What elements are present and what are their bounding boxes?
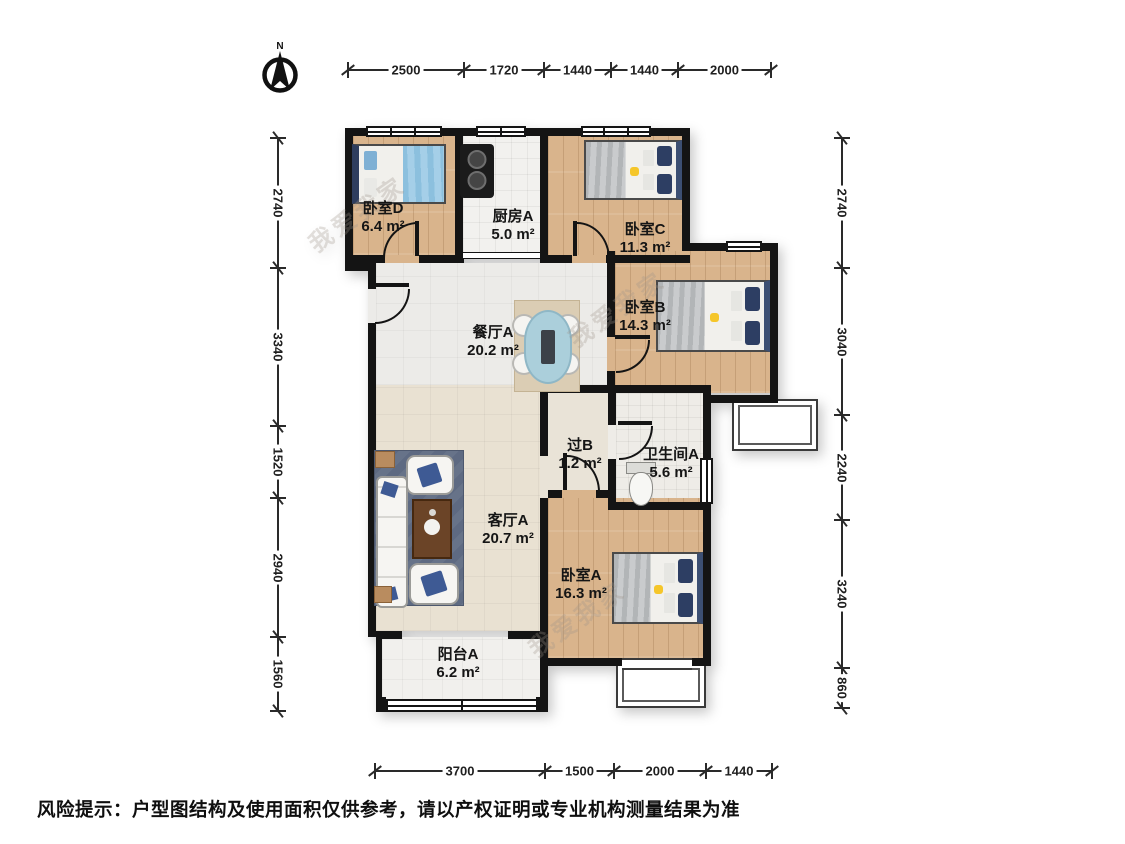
dimension-label: 2240 bbox=[835, 450, 850, 485]
room-label-bedroom-a: 卧室A 16.3 m² bbox=[555, 567, 607, 603]
room-label-bedroom-d: 卧室D 6.4 m² bbox=[361, 200, 404, 236]
dimension-label: 3240 bbox=[835, 577, 850, 612]
room-area: 16.3 m² bbox=[555, 585, 607, 603]
dimension-segment: 3340 bbox=[277, 268, 279, 426]
dimension-segment: 3700 bbox=[375, 770, 545, 772]
dimension-label: 2940 bbox=[271, 550, 286, 585]
dimension-label: 3340 bbox=[271, 330, 286, 365]
room-area: 5.0 m² bbox=[491, 226, 534, 244]
dimension-label: 1440 bbox=[722, 764, 757, 779]
dimension-label: 1500 bbox=[562, 764, 597, 779]
dimension-segment: 2000 bbox=[614, 770, 706, 772]
entrance-door-leaf bbox=[373, 283, 409, 287]
compass-north-icon: N bbox=[254, 38, 306, 98]
room-label-dining-a: 餐厅A 20.2 m² bbox=[467, 324, 519, 360]
equipment-platform bbox=[732, 399, 818, 451]
dimension-segment: 3240 bbox=[841, 520, 843, 668]
dimension-rail-bottom: 3700 1500 2000 1440 bbox=[375, 770, 772, 772]
window-balcony bbox=[386, 699, 538, 712]
window-bedroom-d bbox=[366, 126, 442, 137]
dimension-segment: 1500 bbox=[545, 770, 614, 772]
kitchen-threshold bbox=[463, 252, 540, 259]
armchair bbox=[406, 455, 454, 495]
bed-bedroom-a bbox=[612, 552, 703, 624]
dimension-segment: 2500 bbox=[348, 69, 464, 71]
armchair bbox=[409, 563, 459, 605]
dimension-label: 3040 bbox=[835, 324, 850, 359]
room-label-balcony-a: 阳台A 6.2 m² bbox=[436, 646, 479, 682]
coffee-table bbox=[412, 499, 452, 559]
door-gap-bedroom-b bbox=[607, 337, 615, 371]
wall-segment bbox=[703, 502, 711, 666]
wall-segment bbox=[682, 136, 690, 251]
bay-opening-bedroom-a bbox=[622, 658, 692, 670]
dimension-segment: 2940 bbox=[277, 498, 279, 637]
duck-toy bbox=[710, 313, 719, 322]
window-kitchen bbox=[476, 126, 526, 137]
window-bedroom-b bbox=[726, 241, 762, 252]
room-name: 卧室D bbox=[361, 200, 404, 218]
room-name: 客厅A bbox=[482, 512, 534, 530]
dimension-segment: 1720 bbox=[464, 69, 544, 71]
bed-bedroom-b bbox=[656, 280, 770, 352]
dimension-segment: 3040 bbox=[841, 268, 843, 415]
dimension-segment: 860 bbox=[841, 668, 843, 708]
room-area: 20.2 m² bbox=[467, 342, 519, 360]
room-area: 11.3 m² bbox=[620, 239, 671, 257]
room-name: 卫生间A bbox=[643, 446, 699, 464]
dimension-label: 1440 bbox=[560, 63, 595, 78]
dimension-segment: 1520 bbox=[277, 426, 279, 498]
dimension-segment: 1440 bbox=[706, 770, 772, 772]
dimension-segment: 2000 bbox=[678, 69, 771, 71]
side-table bbox=[375, 451, 395, 468]
wall-segment bbox=[703, 395, 778, 403]
bathroom-door-leaf bbox=[618, 421, 652, 425]
bedroom-b-door-leaf bbox=[615, 335, 650, 339]
room-area: 6.2 m² bbox=[436, 664, 479, 682]
floor-plan: 卧室D 6.4 m² 厨房A 5.0 m² 卧室C 11.3 m² 卧室B 14… bbox=[0, 0, 1125, 844]
room-area: 14.3 m² bbox=[619, 317, 671, 335]
dimension-label: 2740 bbox=[835, 186, 850, 221]
room-label-kitchen-a: 厨房A 5.0 m² bbox=[491, 208, 534, 244]
dimension-label: 2000 bbox=[707, 63, 742, 78]
passage-gap-hall bbox=[540, 456, 548, 498]
compass-north-label: N bbox=[276, 41, 283, 52]
duck-toy bbox=[654, 585, 663, 594]
room-label-bedroom-c: 卧室C 11.3 m² bbox=[620, 221, 671, 257]
wall-segment bbox=[540, 136, 548, 263]
wall-segment bbox=[608, 502, 711, 510]
room-area: 20.7 m² bbox=[482, 530, 534, 548]
wall-segment bbox=[376, 697, 386, 712]
wall-segment bbox=[770, 243, 778, 403]
dimension-rail-left: 2740 3340 1520 2940 1560 bbox=[277, 138, 279, 711]
bed-bedroom-c bbox=[584, 140, 682, 200]
room-area: 5.6 m² bbox=[643, 464, 699, 482]
dimension-segment: 2740 bbox=[277, 138, 279, 268]
dimension-label: 2000 bbox=[643, 764, 678, 779]
room-name: 过B bbox=[558, 437, 601, 455]
stove-icon bbox=[460, 144, 494, 198]
window-bathroom bbox=[700, 458, 713, 504]
dimension-segment: 2740 bbox=[841, 138, 843, 268]
wall-segment bbox=[376, 637, 382, 699]
room-name: 卧室A bbox=[555, 567, 607, 585]
room-name: 阳台A bbox=[436, 646, 479, 664]
dimension-label: 2500 bbox=[389, 63, 424, 78]
dimension-segment: 1560 bbox=[277, 637, 279, 711]
dimension-label: 1440 bbox=[627, 63, 662, 78]
floor-plan-canvas: N 2500 1720 1440 1440 2000 2740 3340 152… bbox=[0, 0, 1125, 844]
dimension-label: 3700 bbox=[443, 764, 478, 779]
room-label-bathroom-a: 卫生间A 5.6 m² bbox=[643, 446, 699, 482]
room-name: 卧室C bbox=[620, 221, 671, 239]
dimension-rail-top: 2500 1720 1440 1440 2000 bbox=[348, 69, 771, 71]
duck-toy bbox=[630, 167, 639, 176]
dimension-label: 2740 bbox=[271, 186, 286, 221]
room-area: 6.4 m² bbox=[361, 218, 404, 236]
room-name: 厨房A bbox=[491, 208, 534, 226]
room-label-living-a: 客厅A 20.7 m² bbox=[482, 512, 534, 548]
dimension-rail-right: 2740 3040 2240 3240 860 bbox=[841, 138, 843, 708]
risk-disclaimer-text: 风险提示：户型图结构及使用面积仅供参考，请以产权证明或专业机构测量结果为准 bbox=[37, 796, 740, 822]
dimension-label: 1520 bbox=[271, 445, 286, 480]
room-area: 1.2 m² bbox=[558, 455, 601, 473]
window-bedroom-c bbox=[581, 126, 651, 137]
room-label-bedroom-b: 卧室B 14.3 m² bbox=[619, 299, 671, 335]
room-label-hall-b: 过B 1.2 m² bbox=[558, 437, 601, 473]
door-gap-bathroom bbox=[608, 425, 616, 459]
room-name: 餐厅A bbox=[467, 324, 519, 342]
dimension-segment: 2240 bbox=[841, 415, 843, 520]
dimension-label: 1720 bbox=[487, 63, 522, 78]
side-table bbox=[374, 586, 392, 603]
dimension-segment: 1440 bbox=[544, 69, 611, 71]
dimension-segment: 1440 bbox=[611, 69, 678, 71]
dimension-label: 1560 bbox=[271, 657, 286, 692]
dimension-label: 860 bbox=[835, 674, 850, 702]
room-name: 卧室B bbox=[619, 299, 671, 317]
